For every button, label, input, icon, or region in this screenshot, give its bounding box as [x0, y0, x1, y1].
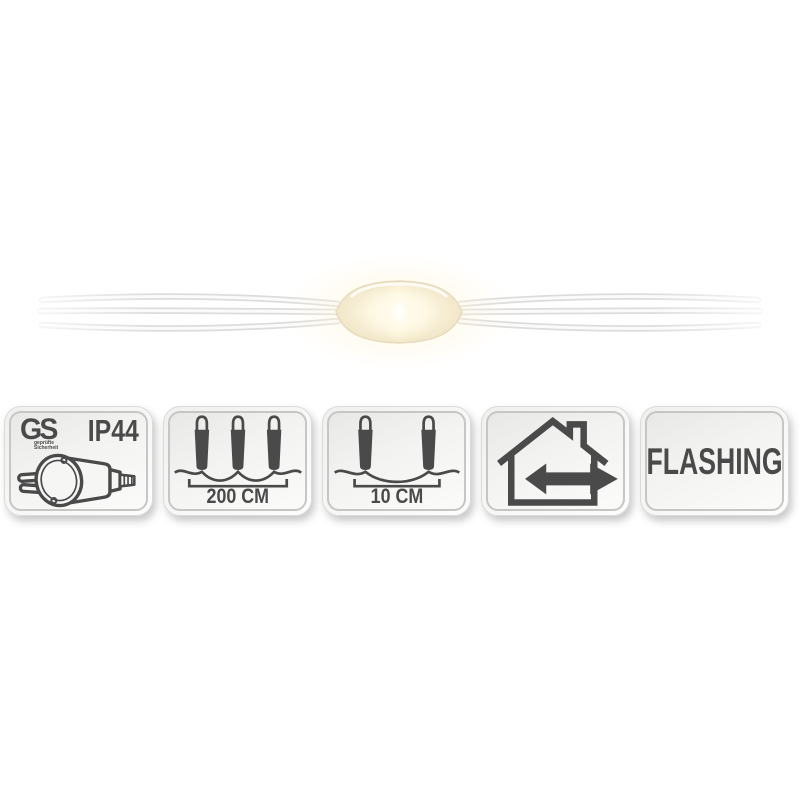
led-core — [380, 283, 418, 341]
total-length-label: 200 CM — [206, 485, 269, 509]
gs-logo-text: GS — [20, 417, 56, 442]
badge-total-length: 200 CM — [163, 406, 312, 516]
led-string-light-photo — [0, 240, 800, 390]
wire-fade-left — [0, 240, 150, 390]
ip-rating-label: IP44 — [88, 417, 139, 444]
gs-certification-logo: GS geprüfteSicherheit — [20, 417, 58, 451]
power-plug-icon — [10, 452, 148, 509]
badge-certification: GS geprüfteSicherheit IP44 — [4, 406, 153, 516]
badge-bulb-distance: 10 CM — [322, 406, 471, 516]
spec-badge-row: GS geprüfteSicherheit IP44 — [4, 406, 789, 516]
double-arrow-icon — [525, 463, 618, 494]
badge-light-mode: FLASHING — [640, 406, 789, 516]
light-mode-label: FLASHING — [646, 443, 782, 480]
house-indoor-outdoor-arrow-icon — [489, 413, 623, 509]
bulb-distance-label: 10 CM — [370, 485, 423, 509]
three-bulbs-on-wire-icon — [170, 414, 306, 488]
product-sheet: GS geprüfteSicherheit IP44 — [0, 0, 800, 800]
badge-indoor-outdoor — [481, 406, 630, 516]
two-bulbs-on-wire-icon — [329, 414, 465, 488]
wire-fade-right — [650, 240, 800, 390]
